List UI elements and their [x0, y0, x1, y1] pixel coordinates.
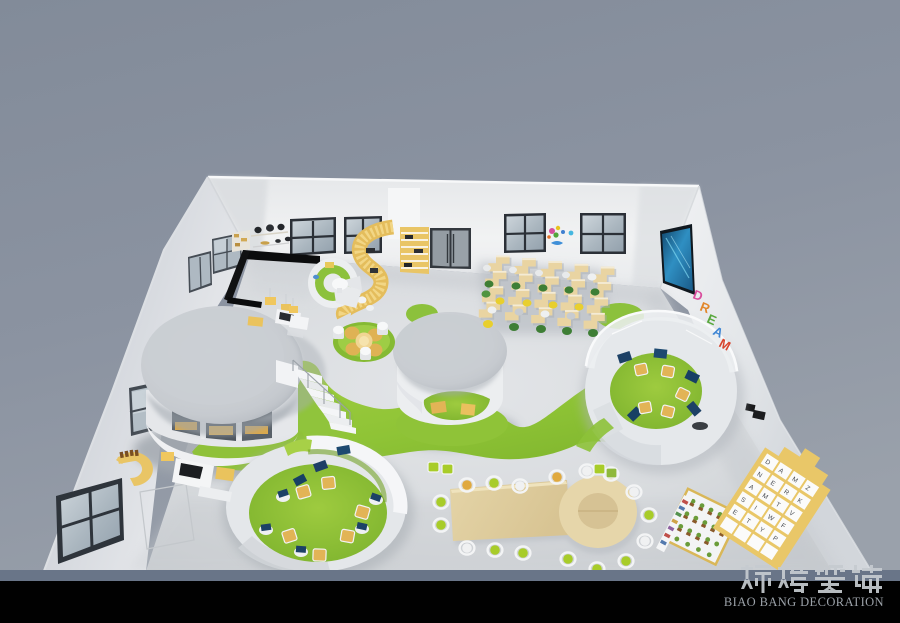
svg-text:BIAO BANG DECORATION: BIAO BANG DECORATION	[724, 595, 884, 609]
